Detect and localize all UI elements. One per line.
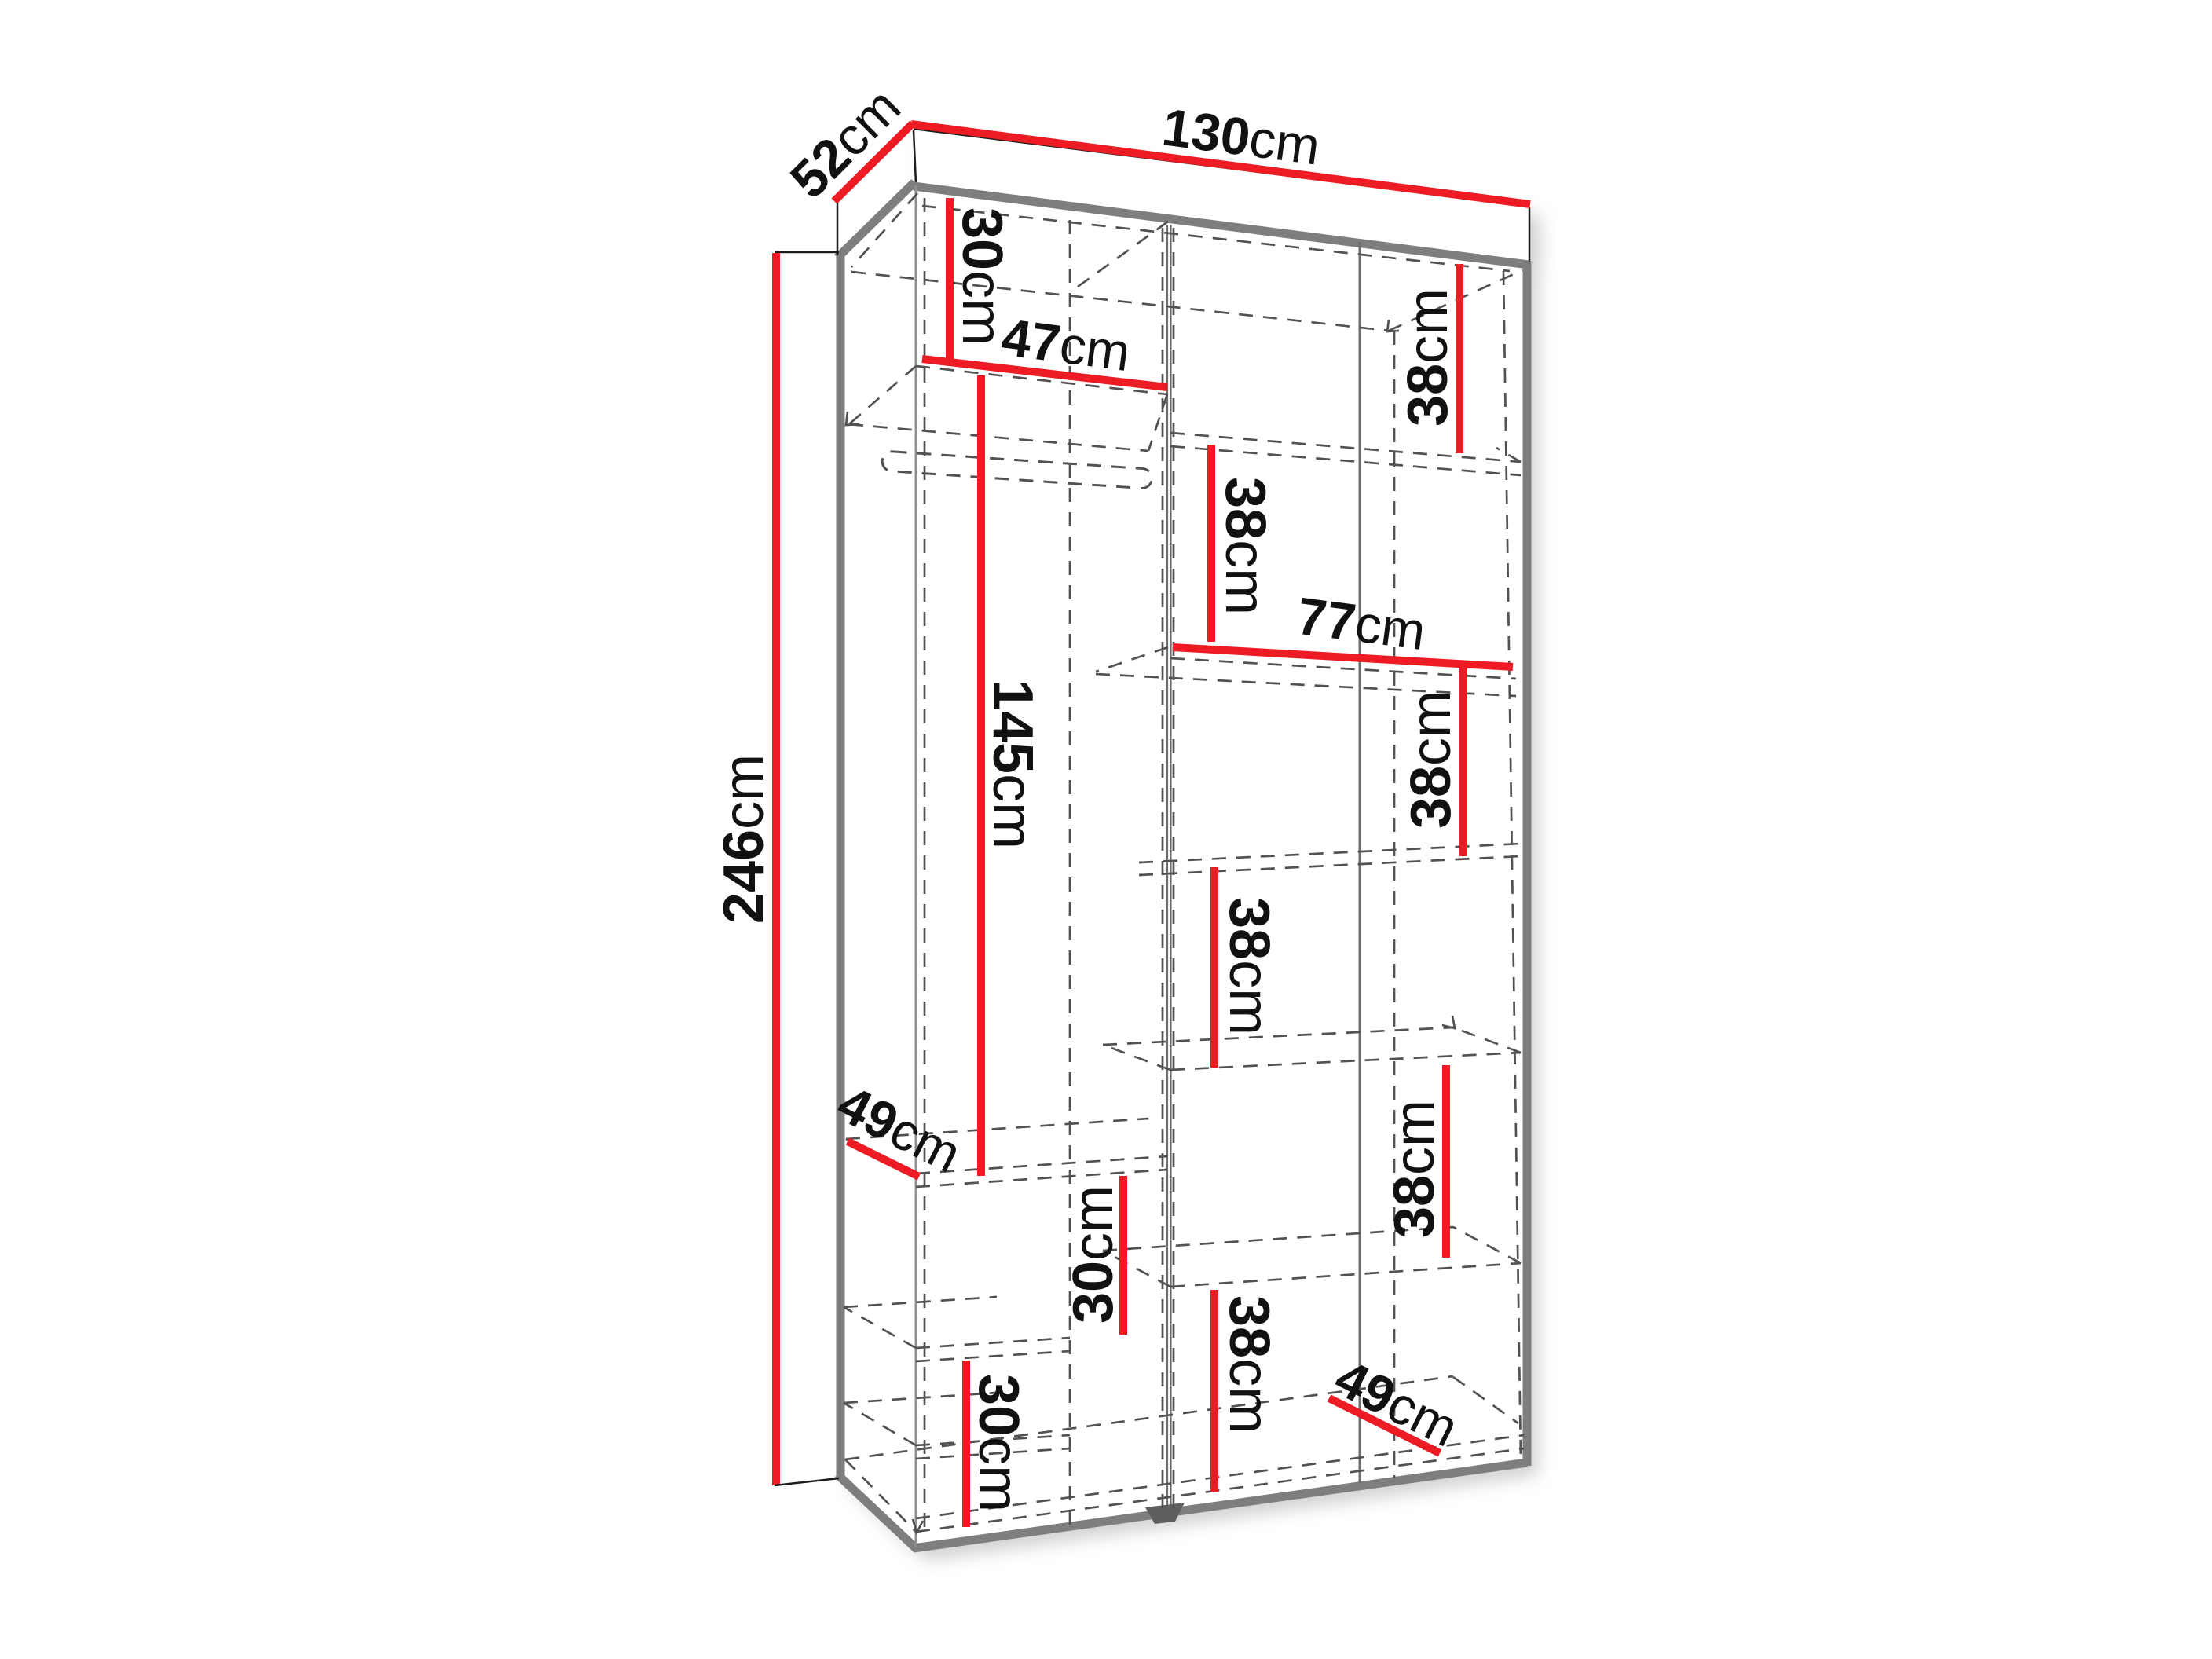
svg-text:38cm: 38cm xyxy=(1383,1100,1446,1238)
svg-text:38cm: 38cm xyxy=(1400,690,1463,829)
svg-text:246cm: 246cm xyxy=(712,754,775,924)
svg-text:30cm: 30cm xyxy=(967,1374,1030,1512)
svg-text:38cm: 38cm xyxy=(1397,288,1459,427)
svg-text:145cm: 145cm xyxy=(981,679,1044,849)
svg-text:38cm: 38cm xyxy=(1218,897,1280,1035)
svg-text:38cm: 38cm xyxy=(1214,477,1276,615)
svg-text:38cm: 38cm xyxy=(1218,1295,1280,1434)
svg-text:30cm: 30cm xyxy=(1062,1185,1125,1324)
